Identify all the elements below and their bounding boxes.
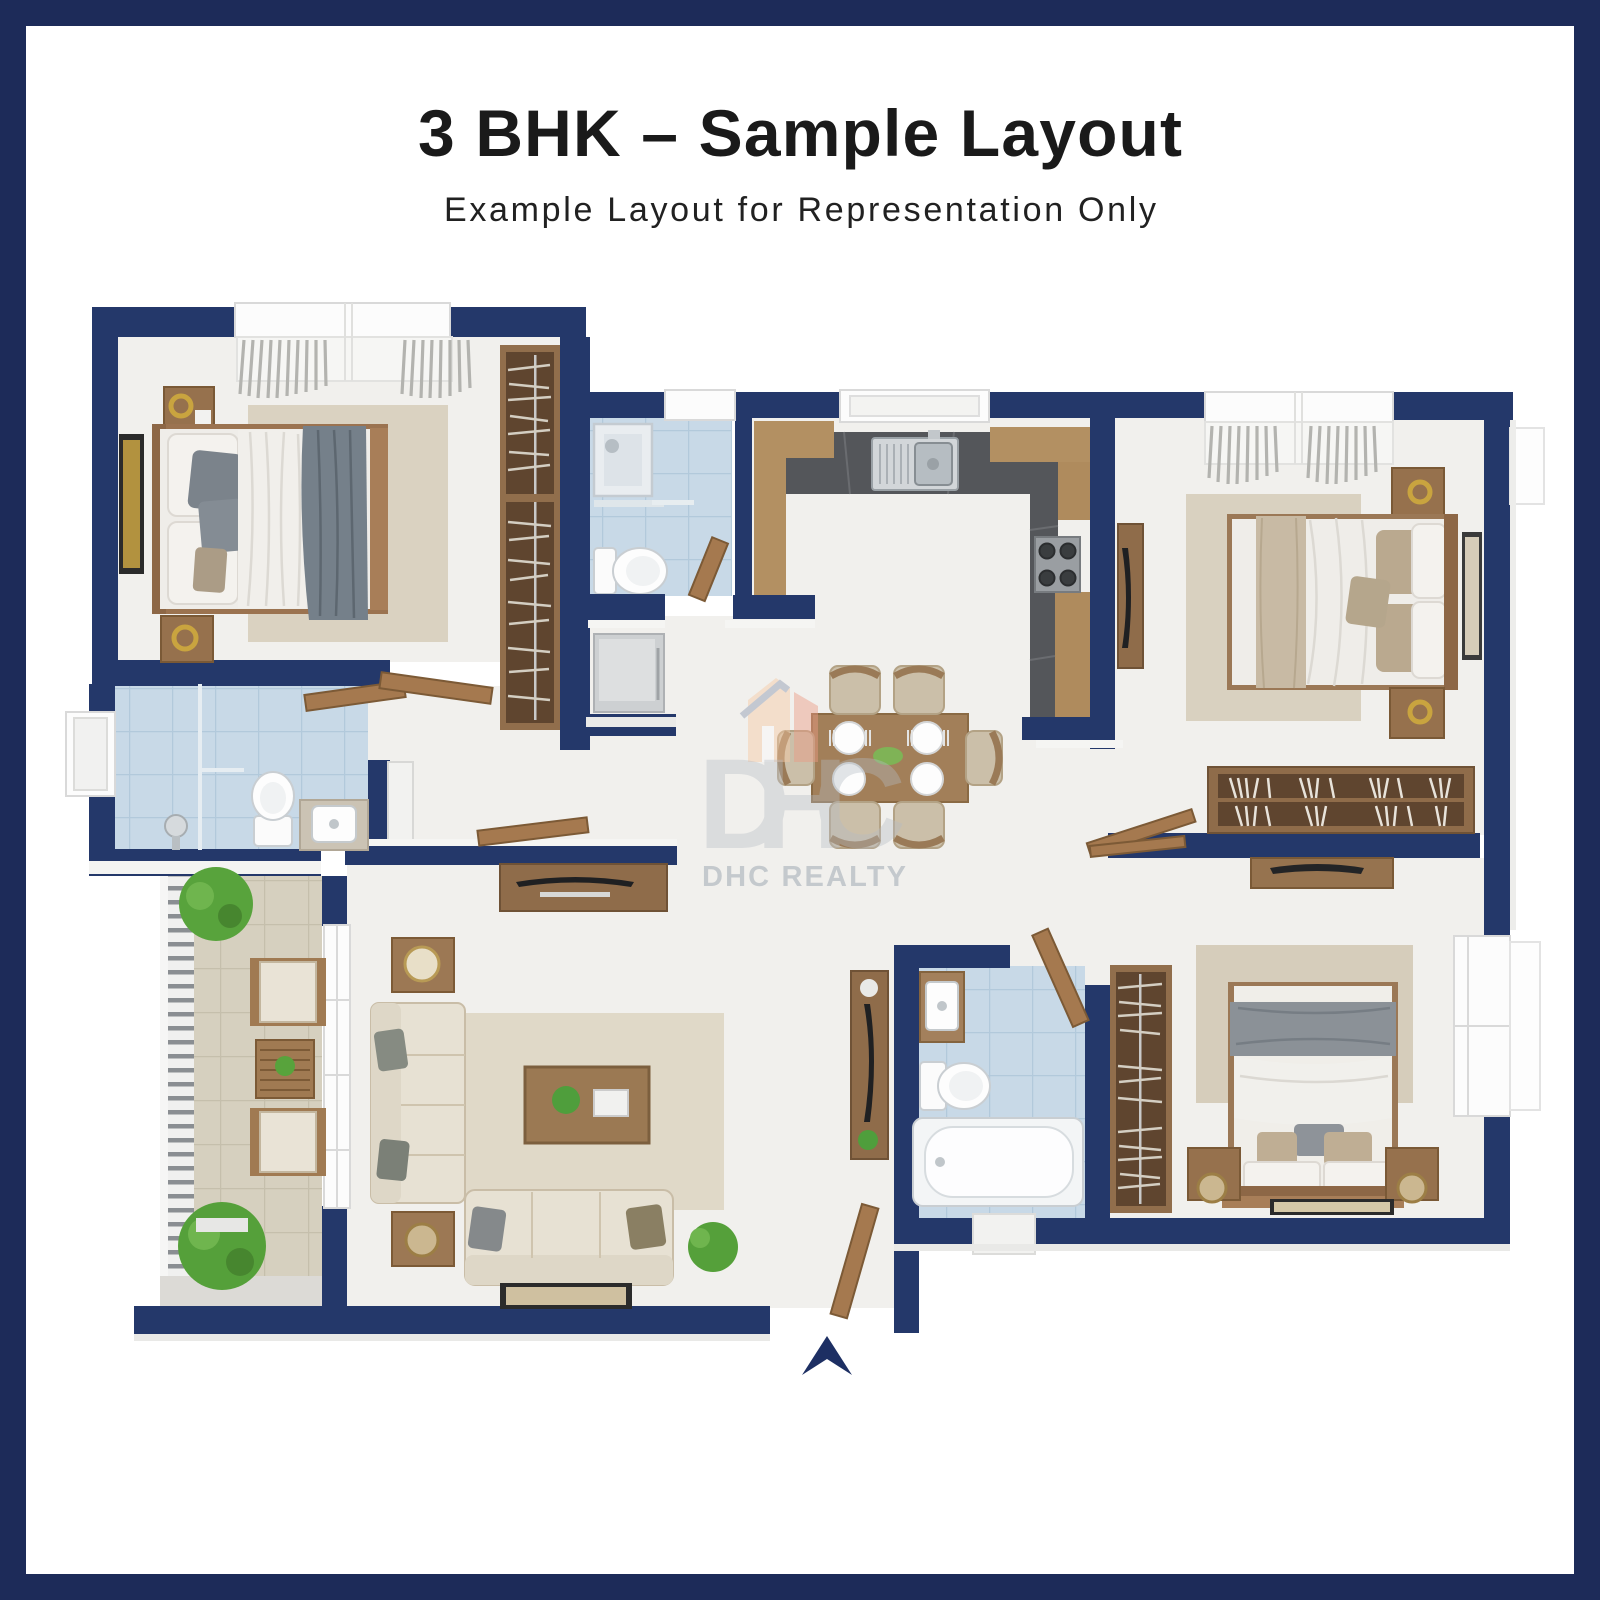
svg-text:DHC REALTY: DHC REALTY bbox=[702, 861, 910, 893]
svg-text:Example Layout for Representat: Example Layout for Representation Only bbox=[444, 191, 1156, 229]
svg-text:DHC: DHC bbox=[698, 733, 906, 876]
svg-text:3 BHK – Sample Layout: 3 BHK – Sample Layout bbox=[418, 96, 1182, 170]
